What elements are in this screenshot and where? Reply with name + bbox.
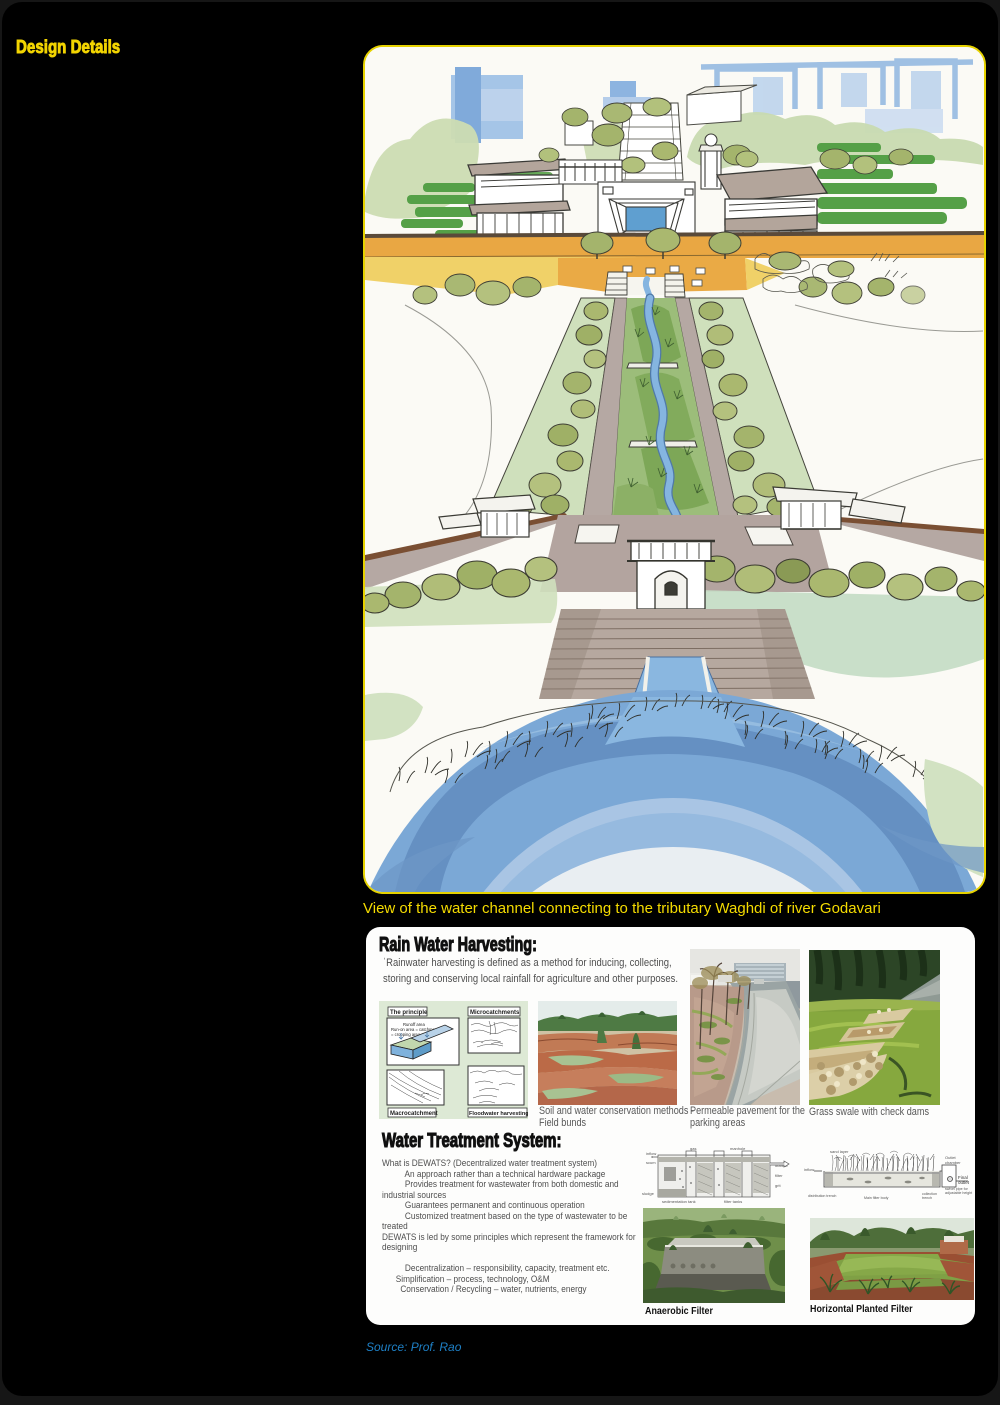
svg-text:The principle: The principle — [390, 1010, 428, 1016]
svg-text:gas: gas — [690, 1146, 696, 1151]
svg-text:Floodwater harvesting: Floodwater harvesting — [469, 1111, 528, 1117]
svg-text:scum: scum — [646, 1160, 656, 1165]
svg-text:inflow: inflow — [804, 1167, 814, 1172]
svg-text:adjustable height: adjustable height — [945, 1191, 972, 1195]
svg-text:sand layer: sand layer — [830, 1149, 849, 1154]
svg-text:manhole: manhole — [730, 1146, 746, 1151]
svg-text:filter tanks: filter tanks — [724, 1199, 742, 1204]
svg-text:filter: filter — [775, 1173, 783, 1178]
svg-text:trench: trench — [922, 1196, 932, 1200]
svg-text:Macrocatchment: Macrocatchment — [390, 1111, 438, 1117]
svg-text:Microcatchments: Microcatchments — [470, 1010, 520, 1016]
svg-text:grit: grit — [775, 1183, 781, 1188]
svg-text:inflow: inflow — [646, 1151, 656, 1156]
svg-text:Main filter body: Main filter body — [864, 1196, 889, 1200]
svg-text:sludge: sludge — [642, 1191, 655, 1196]
svg-text:chamber: chamber — [945, 1160, 961, 1165]
svg-text:distribution trench: distribution trench — [808, 1194, 836, 1198]
svg-text:sedimentation tank: sedimentation tank — [662, 1199, 696, 1204]
